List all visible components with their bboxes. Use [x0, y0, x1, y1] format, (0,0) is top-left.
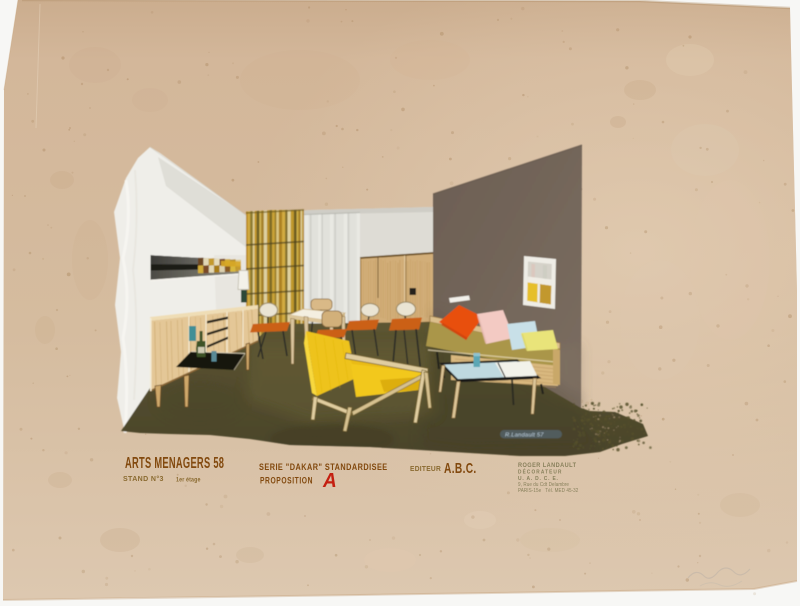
svg-text:A: A — [322, 470, 337, 493]
svg-text:R.Landault 57: R.Landault 57 — [505, 433, 544, 439]
svg-text:A.B.C.: A.B.C. — [444, 459, 477, 477]
svg-text:PARIS-15e Tél. MED 45-32: PARIS-15e Tél. MED 45-32 — [518, 488, 579, 494]
svg-text:PROPOSITION: PROPOSITION — [260, 476, 313, 486]
svg-text:DÉCORATEUR: DÉCORATEUR — [518, 467, 563, 475]
svg-text:U. A. D. C. E.: U. A. D. C. E. — [518, 476, 559, 482]
svg-text:1er étage: 1er étage — [176, 476, 201, 484]
svg-text:ROGER LANDAULT: ROGER LANDAULT — [518, 463, 577, 469]
svg-text:9, Rue du Cdt Delambre: 9, Rue du Cdt Delambre — [518, 482, 569, 488]
svg-text:STAND N°3: STAND N°3 — [123, 474, 164, 483]
svg-text:EDITEUR: EDITEUR — [410, 466, 441, 473]
svg-text:ARTS MENAGERS 58: ARTS MENAGERS 58 — [125, 453, 224, 471]
